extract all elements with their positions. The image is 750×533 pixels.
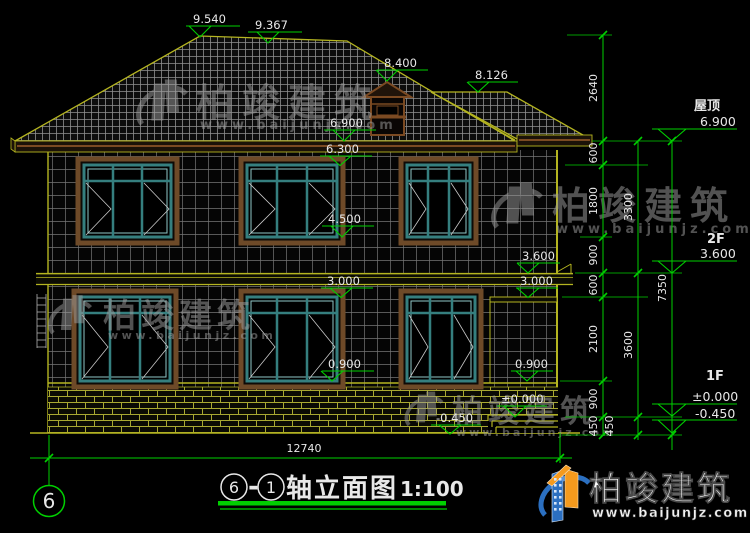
dim-col2-2: 450 [603, 416, 616, 437]
level-porch-roof: 3.600 [522, 249, 555, 263]
f1-value: ±0.000 [692, 389, 738, 404]
f2-label: 2F [707, 232, 725, 247]
brand-logo: 柏竣建筑 www.baijunjz.com [541, 465, 749, 522]
floor-labels: 屋顶 6.900 2F 3.600 1F ±0.000 -0.450 [692, 99, 738, 421]
level-ridge-main: 9.540 [193, 12, 226, 26]
total-width-dimension: 12740 [287, 442, 322, 455]
level-dormer-top: 8.400 [384, 56, 417, 70]
level-porch-floor: ±0.000 [501, 392, 544, 406]
level-ground: -0.450 [436, 411, 473, 425]
level-win2f-sill: 4.500 [328, 212, 361, 226]
dim-col1-3: 900 [587, 245, 600, 266]
roof-floor-label: 屋顶 [694, 99, 720, 114]
roof-floor-value: 6.900 [700, 114, 736, 129]
dim-col3-0: 7350 [656, 274, 669, 302]
level-band-left: 3.000 [327, 274, 360, 288]
axis-bubble-number: 6 [43, 489, 56, 513]
band-end-bracket [557, 264, 571, 272]
title-axis-to: 1 [266, 478, 276, 497]
level-eave: 6.900 [330, 116, 363, 130]
window-2f-center [241, 159, 343, 243]
dim-col1-7: 450 [587, 416, 600, 437]
dim-col2-0: 3300 [622, 193, 635, 221]
window-2f-left [78, 159, 177, 243]
brand-logo-icon [541, 465, 589, 522]
dim-col1-0: 2640 [587, 74, 600, 102]
f1-label: 1F [706, 369, 724, 384]
title-text: 轴立面图 [286, 473, 398, 504]
dim-col1-2: 1800 [587, 187, 600, 215]
dim-col1-6: 900 [587, 389, 600, 410]
level-band-right: 3.000 [520, 274, 553, 288]
level-ridge-break: 9.367 [255, 18, 288, 32]
window-2f-right [401, 159, 476, 243]
level-wing-ridge: 8.126 [475, 68, 508, 82]
window-1f-right [401, 291, 481, 387]
brand-logo-url: www.baijunjz.com [592, 506, 749, 521]
level-win2f-top: 6.300 [326, 142, 359, 156]
gutter-end [11, 138, 15, 152]
watermark-url-text: www.baijunjz.com [108, 329, 276, 342]
brand-logo-name: 柏竣建筑 [589, 469, 733, 508]
cad-elevation-canvas: 柏竣建筑 www.baijunjz.com 柏竣建筑 www.baijunjz.… [0, 0, 750, 533]
dim-col1-1: 600 [587, 143, 600, 164]
ground-value: -0.450 [695, 406, 735, 421]
dim-col2-1: 3600 [622, 331, 635, 359]
downpipe-detail [37, 294, 46, 348]
watermark-url-text: www.baijunjz.com [200, 118, 397, 133]
f2-value: 3.600 [700, 246, 736, 261]
drawing-title: 6 - 1 轴立面图 1:100 [218, 472, 464, 509]
porch-awning [490, 297, 557, 302]
chain-dimensions: 2640 600 1800 900 600 2100 900 450 3300 … [587, 74, 669, 437]
level-sill1f-left: 0.900 [328, 357, 361, 371]
dim-col1-4: 600 [587, 275, 600, 296]
title-axis-from: 6 [229, 478, 239, 497]
title-underline-thick [218, 501, 446, 506]
title-scale: 1:100 [400, 477, 464, 501]
elevation-drawing: 柏竣建筑 www.baijunjz.com 柏竣建筑 www.baijunjz.… [0, 0, 750, 533]
dim-col1-5: 2100 [587, 325, 600, 353]
title-axis-separator: - [248, 472, 261, 502]
level-sill1f-right: 0.900 [515, 357, 548, 371]
